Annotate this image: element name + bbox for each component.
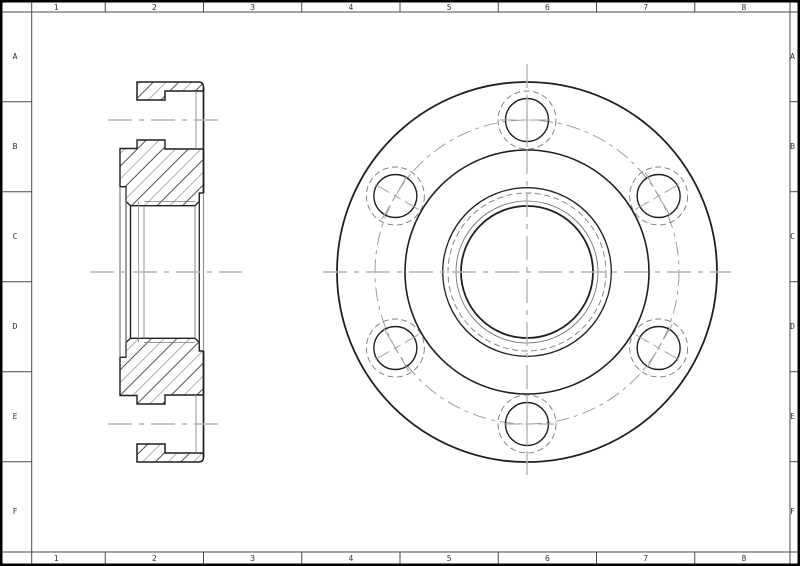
bolt-tangential-centerline-tick <box>645 325 672 372</box>
zone-column-label: 2 <box>152 554 157 563</box>
section-lower-body-hatch <box>120 338 204 404</box>
section-upper-body-hatch <box>120 140 204 206</box>
zone-row-label: C <box>790 232 795 241</box>
zone-column-label: 8 <box>741 554 746 563</box>
sheet-zone-frame <box>1 1 799 565</box>
zone-column-label: 8 <box>741 3 746 12</box>
zone-row-label: B <box>790 142 795 151</box>
zone-row-label: E <box>13 412 18 421</box>
zone-column-label: 6 <box>545 3 550 12</box>
zone-row-label: F <box>790 507 795 516</box>
section-bottom-rim-hatch <box>137 444 204 462</box>
zone-column-label: 5 <box>447 554 452 563</box>
zone-column-label: 4 <box>348 3 353 12</box>
zone-column-label: 3 <box>250 554 255 563</box>
zone-row-label: C <box>13 232 18 241</box>
zone-column-label: 1 <box>54 554 59 563</box>
zone-column-label: 1 <box>54 3 59 12</box>
zone-column-label: 6 <box>545 554 550 563</box>
zone-column-label: 4 <box>348 554 353 563</box>
zone-row-label: F <box>13 507 18 516</box>
zone-column-label: 7 <box>643 3 648 12</box>
bolt-tangential-centerline-tick <box>645 173 672 220</box>
zone-row-label: B <box>13 142 18 151</box>
centerlines <box>90 64 731 480</box>
section-top-rim-hatch <box>137 82 204 100</box>
zone-column-label: 7 <box>643 554 648 563</box>
zone-row-label: D <box>790 322 795 331</box>
zone-column-label: 2 <box>152 3 157 12</box>
bolt-tangential-centerline-tick <box>382 325 409 372</box>
cad-canvas: 1122334455667788AABBCCDDEEFF <box>0 0 800 566</box>
zone-column-label: 5 <box>447 3 452 12</box>
zone-row-label: E <box>790 412 795 421</box>
bolt-tangential-centerline-tick <box>382 173 409 220</box>
zone-row-label: D <box>13 322 18 331</box>
zone-row-label: A <box>790 52 795 61</box>
drawing-sheet: 1122334455667788AABBCCDDEEFF <box>0 0 800 566</box>
zone-column-label: 3 <box>250 3 255 12</box>
zone-row-label: A <box>13 52 18 61</box>
